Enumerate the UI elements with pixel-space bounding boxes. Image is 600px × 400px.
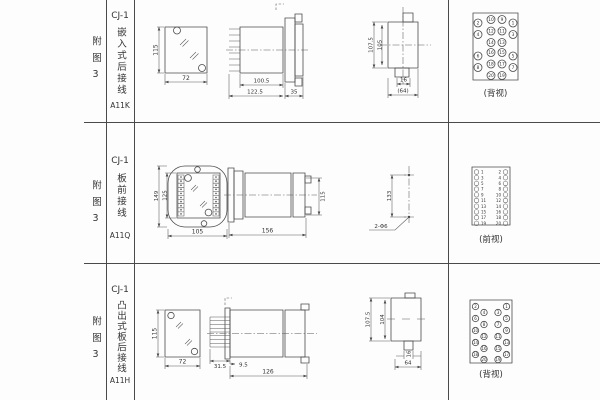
svg-text:11: 11 (481, 198, 487, 203)
model-row2: CJ-1 (106, 156, 134, 166)
terminal-strip-dots (180, 176, 217, 215)
svg-text:4: 4 (498, 175, 501, 180)
svg-text:2: 2 (474, 304, 477, 309)
handle-dashed (225, 298, 232, 305)
grid-hline-1 (84, 122, 600, 123)
terminal-pins (210, 317, 230, 347)
svg-text:19: 19 (495, 357, 501, 362)
dim-126: 126 (262, 369, 274, 376)
svg-text:4: 4 (477, 32, 480, 38)
svg-text:14: 14 (488, 40, 494, 46)
svg-text:5: 5 (512, 54, 515, 60)
svg-text:13: 13 (499, 40, 505, 46)
svg-text:9: 9 (481, 192, 484, 197)
svg-text:18: 18 (473, 352, 479, 357)
terminal-circles (474, 170, 508, 226)
svg-text:1: 1 (505, 304, 508, 309)
row1-outline-view: 107.5 105 16 (64) (369, 7, 432, 98)
svg-text:2: 2 (498, 170, 501, 175)
svg-text:14: 14 (496, 204, 502, 209)
row2-drill-plan: 133 2-Φ6 (369, 166, 414, 230)
dim-149: 149 (154, 190, 160, 201)
svg-text:5: 5 (505, 316, 508, 321)
svg-text:20: 20 (488, 73, 494, 79)
model-row1: CJ-1 (106, 11, 134, 21)
dim-100-5: 100.5 (254, 79, 270, 85)
dim-115: 115 (321, 191, 327, 202)
svg-text:6: 6 (498, 181, 501, 186)
dim-16: 16 (407, 350, 413, 357)
dim-16: 16 (400, 78, 407, 84)
svg-text:15: 15 (481, 210, 487, 215)
row1-drawings: 115 72 100.5 122.5 35 (134, 0, 448, 122)
mirror-hatch-marks (191, 185, 207, 208)
svg-text:17: 17 (481, 215, 487, 220)
mirror-hatch-marks (180, 39, 199, 60)
svg-text:18: 18 (488, 62, 494, 68)
svg-text:3: 3 (481, 175, 484, 180)
svg-text:8: 8 (477, 65, 480, 71)
row1-side-view: 100.5 122.5 35 (226, 4, 310, 99)
row3-panel-view: 115 72 (152, 310, 201, 369)
dim-133: 133 (387, 190, 393, 201)
svg-text:13: 13 (481, 204, 487, 209)
svg-text:17: 17 (499, 62, 505, 68)
dim-105: 105 (192, 229, 204, 236)
code-row1: A11K (106, 101, 134, 110)
mirror-hatch-marks (176, 322, 192, 346)
svg-text:10: 10 (473, 328, 479, 333)
svg-text:1: 1 (512, 21, 515, 27)
svg-text:3: 3 (512, 32, 515, 38)
svg-text:19: 19 (481, 221, 487, 226)
svg-text:19: 19 (499, 73, 505, 79)
svg-text:5: 5 (481, 181, 484, 186)
type-text-row2: 板前接线 (113, 173, 127, 219)
dim-35: 35 (291, 90, 298, 96)
svg-text:20: 20 (496, 221, 502, 226)
terminal-numbers: 1 3 5 7 9 11 13 15 17 19 2 4 6 8 10 12 1… (481, 170, 501, 226)
svg-text:15: 15 (495, 346, 501, 351)
row1-terminal-view: 2 10 9 1 4 12 11 3 14 13 6 16 15 5 8 18 … (455, 0, 600, 122)
svg-text:6: 6 (474, 316, 477, 321)
svg-text:11: 11 (495, 334, 501, 339)
row2-drawings: 149 125 105 115 156 (134, 130, 448, 263)
row2-side-view: 115 156 (224, 168, 327, 238)
row3-terminal-view: 2 6 10 14 18 4 8 12 16 20 3 7 11 15 19 1… (455, 263, 600, 400)
row3-outline-view: 107.5 104 16 64 (366, 293, 426, 370)
fig-label-row3: 附图3 (86, 316, 102, 367)
dim-107-5: 107.5 (369, 37, 375, 53)
svg-text:16: 16 (496, 210, 502, 215)
row3-side-view: 31.5 9.5 126 (207, 298, 317, 379)
handle-dashed (276, 4, 284, 10)
dim-64: (64) (397, 89, 408, 95)
model-row3: CJ-1 (106, 285, 134, 295)
dim-125: 125 (163, 190, 169, 201)
svg-text:20: 20 (481, 357, 487, 362)
terminal-numbers: 2 10 9 1 4 12 11 3 14 13 6 16 15 5 8 18 … (477, 17, 515, 79)
svg-text:15: 15 (499, 50, 505, 56)
dim-31-5: 31.5 (214, 364, 227, 370)
row2-terminal-view: 1 3 5 7 9 11 13 15 17 19 2 4 6 8 10 12 1… (455, 130, 600, 263)
dim-107-5: 107.5 (366, 311, 372, 327)
dim-115: 115 (153, 44, 160, 56)
code-row2: A11Q (106, 231, 134, 240)
svg-text:10: 10 (488, 17, 494, 23)
row2-front-view: 149 125 105 (154, 166, 227, 239)
dim-9-5: 9.5 (239, 363, 248, 369)
fig-label-row2: 附图3 (86, 180, 102, 231)
svg-text:7: 7 (481, 187, 484, 192)
svg-text:8: 8 (498, 187, 501, 192)
type-text-row3: 凸出式板后接线 (113, 300, 127, 374)
dim-156: 156 (262, 228, 274, 235)
svg-text:12: 12 (488, 29, 494, 35)
fig-label-row1: 附图3 (86, 36, 102, 87)
view-caption-row3: (背视) (479, 369, 503, 380)
svg-text:9: 9 (505, 328, 508, 333)
svg-text:18: 18 (496, 215, 502, 220)
svg-text:1: 1 (481, 170, 484, 175)
svg-text:12: 12 (481, 334, 487, 339)
view-caption-row1: (背视) (484, 88, 508, 99)
grid-vline-3 (448, 0, 449, 400)
row1-panel-cutout-view: 115 72 (153, 27, 208, 85)
svg-text:9: 9 (501, 17, 504, 23)
dim-115: 115 (152, 328, 159, 340)
terminal-circles (474, 16, 517, 80)
svg-text:14: 14 (473, 340, 479, 345)
dim-72: 72 (182, 75, 190, 82)
svg-text:4: 4 (483, 310, 486, 315)
dim-122-5: 122.5 (247, 90, 263, 96)
dim-105: 105 (378, 39, 384, 50)
svg-text:13: 13 (504, 340, 510, 345)
view-caption-row2: (前视) (479, 234, 503, 245)
svg-text:3: 3 (497, 310, 500, 315)
dim-104: 104 (380, 314, 386, 325)
svg-text:10: 10 (496, 192, 502, 197)
dim-72: 72 (179, 359, 187, 366)
svg-text:7: 7 (512, 65, 515, 71)
svg-text:8: 8 (483, 322, 486, 327)
svg-text:2: 2 (477, 21, 480, 27)
drawing-sheet: 附图3 CJ-1 嵌入式后接线 A11K 附图3 CJ-1 板前接线 A11Q … (0, 0, 600, 400)
code-row3: A11H (106, 376, 134, 385)
dim-holes: 2-Φ6 (374, 224, 388, 230)
svg-text:11: 11 (499, 29, 505, 35)
svg-text:12: 12 (496, 198, 502, 203)
svg-text:16: 16 (481, 346, 487, 351)
svg-text:6: 6 (477, 54, 480, 60)
svg-text:7: 7 (497, 322, 500, 327)
svg-text:16: 16 (488, 50, 494, 56)
row3-drawings: 115 72 31.5 9.5 126 (134, 263, 448, 400)
svg-text:17: 17 (504, 352, 510, 357)
type-text-row1: 嵌入式后接线 (113, 27, 127, 96)
dim-64: 64 (405, 361, 412, 367)
